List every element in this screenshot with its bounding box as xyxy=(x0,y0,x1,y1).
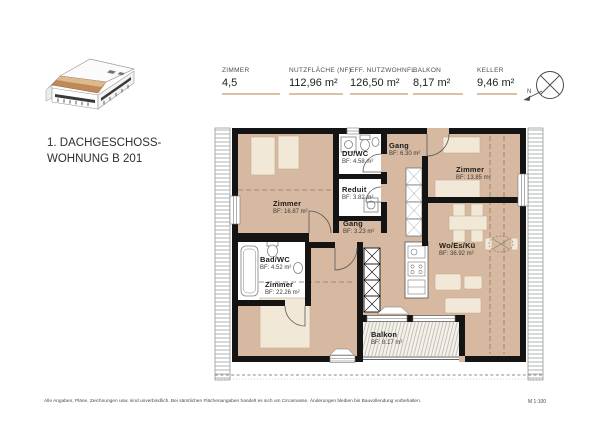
wardrobe-units xyxy=(406,168,422,236)
room-area: BF: 36.92 m² xyxy=(439,251,475,257)
metric-label: EFF. NUTZWOHNFL. xyxy=(350,67,408,74)
title-line2: WOHNUNG B 201 xyxy=(47,152,161,168)
room-name: Zimmer xyxy=(273,200,308,208)
room-label-reduit: Reduit BF: 3.82 m² xyxy=(342,186,373,201)
metric-zimmer: ZIMMER 4,5 xyxy=(222,67,280,95)
metric-value: 4,5 xyxy=(222,77,280,95)
room-area: BF: 22.26 m² xyxy=(265,290,300,296)
metric-label: ZIMMER xyxy=(222,67,280,74)
room-name: Zimmer xyxy=(456,166,491,174)
room-label-du-wc: DU/WC BF: 4.58 m² xyxy=(342,150,373,165)
page-title: 1. DACHGESCHOSS- WOHNUNG B 201 xyxy=(47,136,161,167)
title-line1: 1. DACHGESCHOSS- xyxy=(47,136,161,152)
metric-label: BALKON xyxy=(413,67,463,74)
room-name: Zimmer xyxy=(265,281,300,289)
metric-value: 126,50 m² xyxy=(350,77,408,95)
room-label-wo-es-kue: Wo/Es/Kü BF: 36.92 m² xyxy=(439,242,475,257)
room-label-gang-entry: Gang BF: 6.30 m² xyxy=(389,142,420,157)
room-label-zimmer-3: Zimmer BF: 22.26 m² xyxy=(265,281,300,296)
compass-north-icon: N xyxy=(514,60,570,108)
metric-nutzflaeche: NUTZFLÄCHE (NF) 112,96 m² xyxy=(289,67,343,95)
sink xyxy=(294,263,303,274)
compass-label: N xyxy=(527,89,531,95)
room-area: BF: 13.85 m² xyxy=(456,175,491,181)
page: ZIMMER 4,5 NUTZFLÄCHE (NF) 112,96 m² EFF… xyxy=(0,0,600,423)
room-area: BF: 3.82 m² xyxy=(342,195,373,201)
eave-hatch-right xyxy=(528,128,543,380)
room-name: DU/WC xyxy=(342,150,373,158)
house-icon xyxy=(44,52,136,114)
eave-hatch-left xyxy=(215,128,230,380)
room-area: BF: 6.30 m² xyxy=(389,151,420,157)
metric-value: 9,46 m² xyxy=(477,77,517,95)
shaft-units xyxy=(364,248,380,312)
metric-eff-nutzwohnflaeche: EFF. NUTZWOHNFL. 126,50 m² xyxy=(350,67,408,95)
floor-plan-drawing xyxy=(213,116,545,392)
room-label-balkon: Balkon BF: 8.17 m² xyxy=(371,331,402,346)
room-name: Gang xyxy=(389,142,420,150)
bed xyxy=(435,180,480,198)
room-name: Wo/Es/Kü xyxy=(439,242,475,250)
room-name: Bad/WC xyxy=(260,256,291,264)
room-label-zimmer-1: Zimmer BF: 16.87 m² xyxy=(273,200,308,215)
metric-label: KELLER xyxy=(477,67,517,74)
room-label-zimmer-2: Zimmer BF: 13.85 m² xyxy=(456,166,491,181)
floor-plan: Zimmer BF: 16.87 m² DU/WC BF: 4.58 m² Ga… xyxy=(213,116,545,392)
chair xyxy=(511,238,518,250)
roof-edge-dashed xyxy=(215,375,543,379)
scale-label: M 1:100 xyxy=(528,399,546,405)
room-area: BF: 8.17 m² xyxy=(371,340,402,346)
room-label-gang-inner: Gang BF: 3.23 m² xyxy=(343,220,374,235)
bed xyxy=(251,137,275,175)
bed xyxy=(278,136,299,169)
sink xyxy=(372,138,379,147)
room-label-bad-wc: Bad/WC BF: 4.52 m² xyxy=(260,256,291,271)
room-name: Reduit xyxy=(342,186,373,194)
metric-value: 112,96 m² xyxy=(289,77,343,95)
footer-disclaimer: Alle Angaben, Pläne, Zeichnungen usw. si… xyxy=(44,399,524,404)
room-area: BF: 4.58 m² xyxy=(342,159,373,165)
room-area: BF: 4.52 m² xyxy=(260,265,291,271)
metric-value: 8,17 m² xyxy=(413,77,463,95)
metric-keller: KELLER 9,46 m² xyxy=(477,67,517,95)
room-name: Gang xyxy=(343,220,374,228)
room-area: BF: 16.87 m² xyxy=(273,209,308,215)
room-name: Balkon xyxy=(371,331,402,339)
room-area: BF: 3.23 m² xyxy=(343,229,374,235)
metric-label: NUTZFLÄCHE (NF) xyxy=(289,67,343,74)
toilet-tank xyxy=(360,135,370,140)
metric-balkon: BALKON 8,17 m² xyxy=(413,67,463,95)
